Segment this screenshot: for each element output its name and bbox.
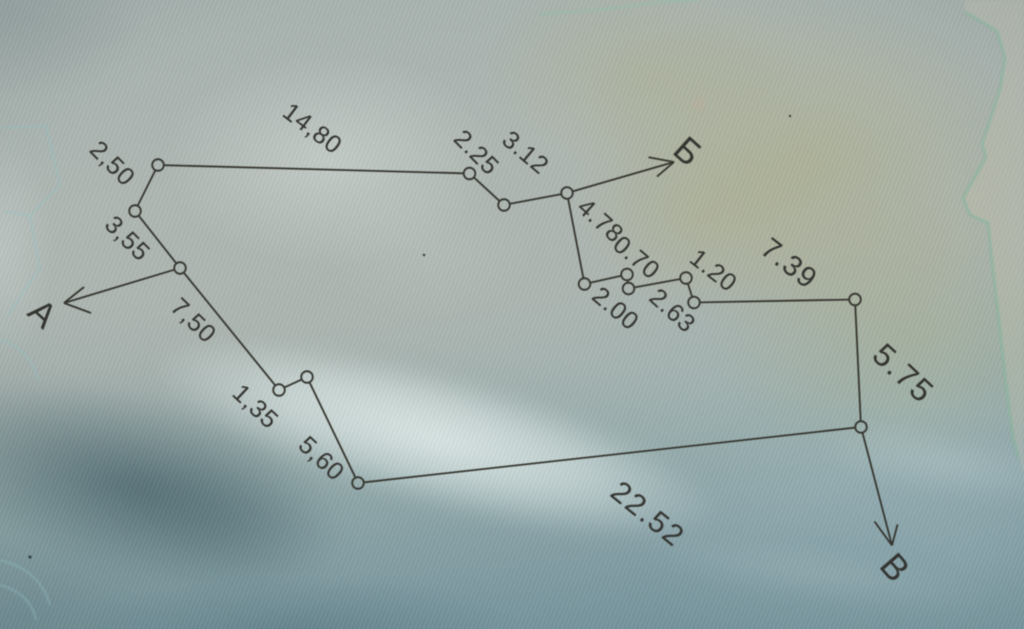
svg-text:В: В — [872, 546, 917, 589]
svg-text:1.20: 1.20 — [684, 244, 742, 298]
svg-text:14,80: 14,80 — [277, 98, 347, 160]
svg-text:22.52: 22.52 — [604, 475, 691, 554]
svg-text:A: A — [21, 291, 65, 336]
svg-text:7,50: 7,50 — [165, 293, 222, 349]
svg-text:7.39: 7.39 — [755, 232, 824, 296]
svg-text:4.78: 4.78 — [572, 193, 629, 249]
svg-text:2.00: 2.00 — [586, 281, 644, 336]
svg-text:5,60: 5,60 — [293, 431, 350, 487]
svg-text:Б: Б — [666, 129, 709, 173]
svg-text:2.63: 2.63 — [644, 283, 701, 339]
svg-text:0.70: 0.70 — [607, 230, 665, 285]
svg-text:2.25: 2.25 — [448, 124, 504, 180]
svg-text:2,50: 2,50 — [84, 135, 140, 191]
svg-text:1,35: 1,35 — [227, 379, 284, 435]
svg-text:3,55: 3,55 — [99, 210, 155, 266]
svg-text:5.75: 5.75 — [866, 336, 942, 410]
svg-text:3.12: 3.12 — [496, 125, 554, 180]
